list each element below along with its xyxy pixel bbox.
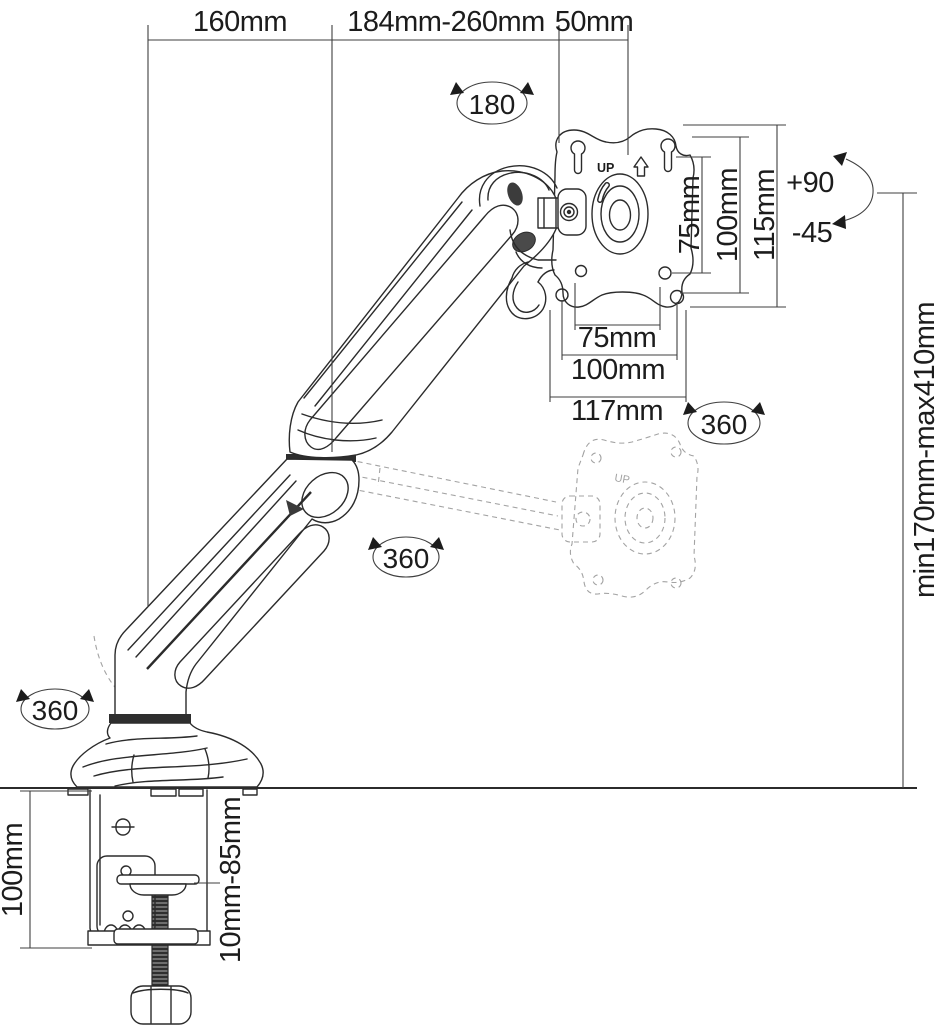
rotation-360-vesa-icon: 360 (683, 402, 765, 444)
gas-spring-arm (115, 454, 359, 715)
dim-clamp-height: 100mm (0, 791, 92, 948)
svg-text:360: 360 (701, 409, 748, 440)
base-dome (71, 723, 263, 787)
tilt-arc-arrow-icon (843, 159, 873, 221)
svg-text:180: 180 (469, 89, 516, 120)
svg-text:360: 360 (32, 695, 79, 726)
dim-elbow-to-head: 184mm-260mm (347, 6, 545, 38)
ghost-clevis (562, 496, 600, 542)
svg-text:360: 360 (383, 543, 430, 574)
dimension-annotations: 160mm 184mm-260mm 50mm 75mm 100mm 115mm … (0, 6, 941, 963)
tilt-hinge-boss (558, 189, 586, 235)
dim-head-offset: 50mm (555, 6, 634, 38)
dim-vesa-vertical: 75mm 100mm 115mm (672, 125, 786, 307)
dim-clamp-bracket-height: 100mm (0, 823, 29, 917)
upper-arm (289, 171, 559, 458)
clamp-bracket (90, 790, 207, 933)
ghost-vesa-plate (570, 433, 698, 597)
clamp-washer-flange (114, 929, 198, 944)
clamp-slide-insert (97, 856, 155, 936)
dim-tilt-up: +90 (786, 167, 834, 199)
dim-tilt-range: +90 -45 (786, 152, 873, 249)
monitor-arm-dimension-diagram: UP UP (0, 0, 942, 1026)
base (71, 714, 263, 787)
clamp-pad (130, 884, 186, 895)
base-swivel-band (109, 714, 191, 723)
dim-clamp-thickness-range: 10mm-85mm (215, 797, 247, 963)
dim-plate-width: 117mm (571, 395, 663, 427)
desk-surface (0, 788, 917, 796)
rotation-360-base-icon: 360 (16, 689, 94, 729)
dim-base-to-elbow: 160mm (193, 6, 287, 38)
desk-clamp (88, 790, 210, 1024)
dim-vesa-v75: 75mm (674, 176, 706, 255)
dim-tilt-down: -45 (792, 217, 832, 249)
clamp-pad-plate (117, 875, 199, 884)
dim-height-range: min170mm-max410mm (877, 193, 941, 788)
up-marker: UP (597, 161, 614, 175)
dim-vesa-h75: 75mm (578, 322, 657, 354)
rotation-180-head-icon: 180 (450, 82, 534, 124)
rotation-360-elbow-icon: 360 (368, 537, 444, 577)
dim-vesa-h100: 100mm (571, 354, 665, 386)
ghost-up-marker: UP (613, 472, 630, 486)
dim-plate-height: 115mm (749, 169, 781, 261)
dim-vesa-v100: 100mm (712, 168, 744, 262)
dim-height-range: min170mm-max410mm (909, 302, 941, 598)
